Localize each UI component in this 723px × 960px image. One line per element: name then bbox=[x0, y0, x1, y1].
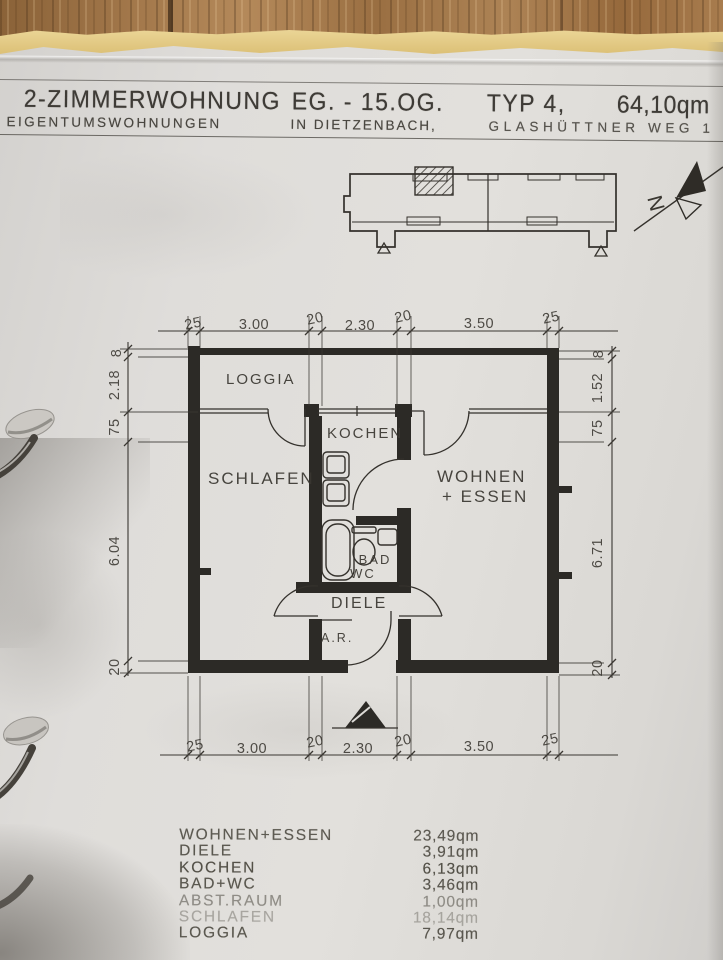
wall-stub bbox=[559, 572, 572, 579]
dim-left-4: 20 bbox=[107, 658, 123, 675]
room-labels: LOGGIA SCHLAFEN KOCHEN WOHNEN + ESSEN BA… bbox=[208, 371, 528, 645]
dim-right-3: 6.71 bbox=[590, 538, 606, 568]
area-row: SCHLAFEN 18,14qm bbox=[179, 908, 479, 926]
room-label-wc: WC bbox=[350, 566, 376, 581]
site-plan bbox=[344, 167, 616, 256]
wall-pillar bbox=[304, 404, 319, 417]
north-label: N bbox=[642, 193, 668, 214]
dim-top-5: 3.50 bbox=[464, 316, 494, 332]
wall-ar-right bbox=[398, 619, 411, 661]
dim-left-2: 75 bbox=[107, 418, 123, 435]
area-row-label: ABST.RAUM bbox=[179, 892, 284, 909]
wall-stub bbox=[200, 568, 211, 575]
walls bbox=[188, 346, 572, 673]
wall-left bbox=[188, 346, 200, 668]
north-arrow-head bbox=[676, 161, 706, 198]
dim-top-4: 20 bbox=[393, 307, 413, 326]
area-row-value: 3,46qm bbox=[422, 877, 479, 894]
wall-right bbox=[547, 348, 559, 670]
area-row-value: 18,14qm bbox=[413, 909, 479, 926]
dim-top-6: 25 bbox=[541, 308, 561, 327]
room-label-wohnen: WOHNEN bbox=[437, 467, 526, 486]
area-row-value: 23,49qm bbox=[413, 827, 479, 844]
punched-hole bbox=[0, 712, 51, 749]
dim-left-0: 8 bbox=[109, 349, 125, 358]
dim-top-1: 3.00 bbox=[239, 317, 269, 333]
wall-bottom-right bbox=[396, 660, 559, 673]
dim-right-1: 1.52 bbox=[590, 373, 606, 403]
wall-bottom-left bbox=[188, 660, 348, 673]
page-title: 2-ZIMMERWOHNUNG bbox=[24, 84, 281, 115]
kitchen-stove-top bbox=[327, 484, 345, 501]
ring-wire bbox=[0, 878, 30, 910]
wall-bad-wohnen bbox=[397, 508, 411, 583]
photo-of-floorplan-sheet: N bbox=[0, 0, 723, 960]
area-row-label: SCHLAFEN bbox=[179, 908, 276, 925]
binder-rings bbox=[0, 404, 58, 910]
area-row-label: DIELE bbox=[179, 843, 233, 860]
area-row-value: 7,97qm bbox=[422, 926, 479, 943]
dims-bottom: 25 3.00 20 2.30 20 3.50 25 bbox=[185, 730, 560, 757]
north-arrow: N bbox=[634, 161, 723, 231]
subtitle-project: EIGENTUMSWOHNUNGEN bbox=[7, 114, 222, 131]
ring-wire bbox=[0, 748, 32, 802]
north-arrow-tail bbox=[676, 198, 701, 219]
dim-right-4: 20 bbox=[590, 659, 606, 676]
room-label-bad: BAD bbox=[359, 552, 392, 567]
dim-left-1: 2.18 bbox=[107, 370, 123, 400]
dims-top: 25 3.00 20 2.30 20 3.50 25 bbox=[183, 307, 561, 334]
dim-bottom-1: 3.00 bbox=[237, 741, 267, 757]
unit-location-hatch bbox=[415, 167, 453, 195]
kitchen-sink-basin bbox=[327, 456, 345, 473]
area-row: BAD+WC 3,46qm bbox=[179, 875, 479, 893]
area-row-value: 3,91qm bbox=[423, 844, 480, 861]
entrance-triangle-left bbox=[378, 243, 390, 253]
room-label-diele: DIELE bbox=[331, 595, 387, 612]
area-row-value: 6,13qm bbox=[423, 860, 480, 877]
dim-bottom-5: 3.50 bbox=[464, 739, 494, 755]
wall-pillar bbox=[395, 404, 412, 417]
room-label-ar: A.R. bbox=[321, 631, 353, 645]
entrance-triangle bbox=[345, 701, 386, 728]
wall-stub bbox=[559, 486, 572, 493]
room-label-kochen: KOCHEN bbox=[327, 425, 403, 442]
subtitle-city: IN DIETZENBACH, bbox=[291, 117, 437, 133]
area-table: WOHNEN+ESSEN 23,49qm DIELE 3,91qm KOCHEN… bbox=[179, 826, 480, 942]
area-row-label: KOCHEN bbox=[179, 859, 256, 876]
room-label-schlafen: SCHLAFEN bbox=[208, 469, 315, 488]
toilet-tank bbox=[352, 527, 376, 533]
bathtub-inner bbox=[326, 524, 350, 576]
dim-bottom-3: 2.30 bbox=[343, 741, 373, 757]
bath-sink bbox=[378, 529, 397, 545]
dim-left-3: 6.04 bbox=[107, 536, 123, 566]
header-rule-bottom bbox=[0, 134, 723, 142]
area-row: KOCHEN 6,13qm bbox=[179, 859, 479, 877]
dim-bottom-6: 25 bbox=[540, 730, 560, 749]
building-outline bbox=[344, 174, 616, 247]
area-row: DIELE 3,91qm bbox=[179, 843, 479, 861]
dim-right-0: 8 bbox=[591, 350, 607, 359]
area-row-value: 1,00qm bbox=[422, 893, 479, 910]
sheet-header: 2-ZIMMERWOHNUNG EG. - 15.OG. TYP 4, 64,1… bbox=[0, 79, 723, 150]
dim-right-2: 75 bbox=[590, 419, 606, 436]
wall-bad-diele bbox=[296, 582, 411, 593]
floor-range: EG. - 15.OG. bbox=[292, 87, 444, 117]
dim-main-lines bbox=[128, 331, 618, 755]
area-row: WOHNEN+ESSEN 23,49qm bbox=[179, 826, 479, 844]
dims-left: 8 2.18 75 6.04 20 bbox=[107, 349, 125, 676]
dim-top-3: 2.30 bbox=[345, 318, 375, 334]
wall-schlafen-kueche bbox=[309, 416, 322, 583]
wall-loggia-parapet bbox=[188, 348, 559, 355]
area-row: LOGGIA 7,97qm bbox=[179, 925, 479, 943]
subtitle-street: GLASHÜTTNER WEG 1 bbox=[488, 119, 714, 136]
bath-shelf bbox=[356, 516, 397, 525]
dims-right: 8 1.52 75 6.71 20 bbox=[590, 350, 607, 677]
unit-type: TYP 4, bbox=[487, 89, 566, 119]
entrance-marker bbox=[332, 701, 398, 728]
area-row-label: LOGGIA bbox=[179, 925, 249, 942]
dim-bottom-4: 20 bbox=[393, 731, 413, 750]
area-row-label: WOHNEN+ESSEN bbox=[179, 826, 333, 843]
room-label-loggia: LOGGIA bbox=[226, 371, 296, 388]
door-arcs bbox=[268, 409, 469, 665]
room-label-essen: + ESSEN bbox=[442, 487, 528, 506]
area-row: ABST.RAUM 1,00qm bbox=[179, 892, 479, 910]
area-row-label: BAD+WC bbox=[179, 875, 257, 892]
total-area: 64,10qm bbox=[617, 90, 710, 120]
